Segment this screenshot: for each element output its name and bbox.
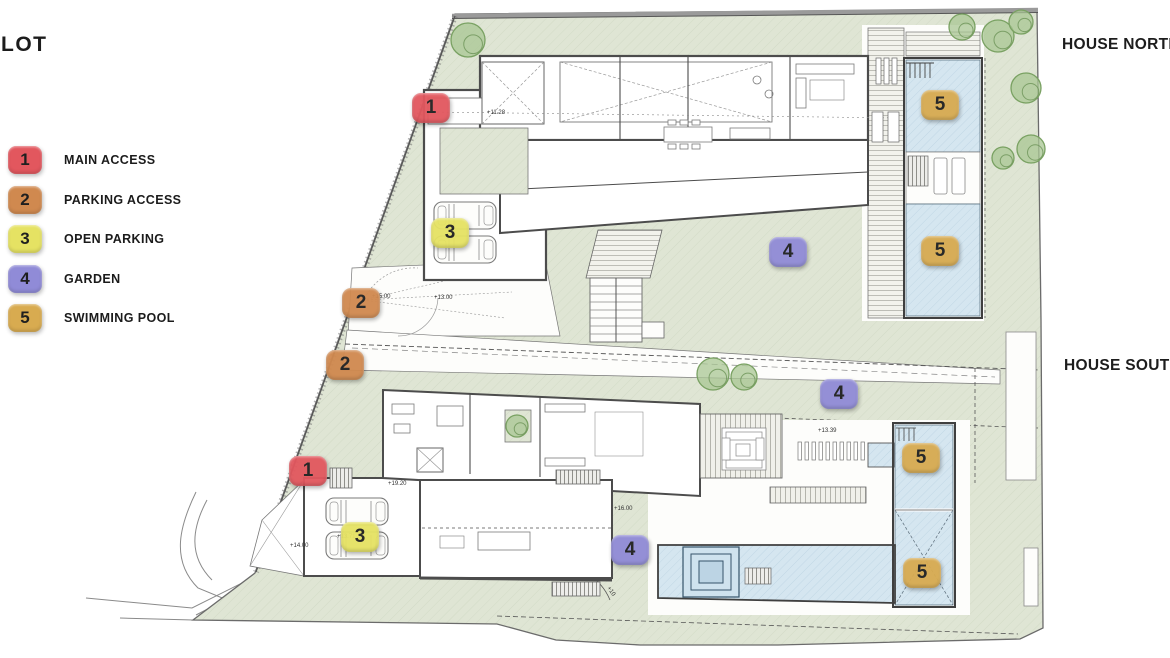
elevation-label: +13.39 (818, 428, 837, 434)
pool-ladder-icon (906, 63, 934, 78)
plan-marker-swimming-pool: 5 (902, 443, 940, 473)
north-court (440, 128, 528, 194)
boardwalk (770, 487, 866, 503)
plan-marker-garden: 4 (769, 237, 807, 267)
plan-marker-garden: 4 (611, 535, 649, 565)
plan-marker-swimming-pool: 5 (903, 558, 941, 588)
plan-marker-main-access: 1 (412, 93, 450, 123)
pool-lounger (934, 158, 947, 194)
plan-marker-swimming-pool: 5 (921, 90, 959, 120)
elevation-label: +16.00 (614, 506, 633, 512)
plan-marker-open-parking: 3 (341, 522, 379, 552)
pool-lounger (952, 158, 965, 194)
plan-marker-main-access: 1 (289, 456, 327, 486)
plan-marker-open-parking: 3 (431, 218, 469, 248)
elevation-label: +19.20 (388, 481, 407, 487)
site-plan-page: LOT 1MAIN ACCESS2PARKING ACCESS3OPEN PAR… (0, 0, 1170, 658)
plan-marker-parking-access: 2 (326, 350, 364, 380)
plan-marker-garden: 4 (820, 379, 858, 409)
elevation-label: +13.00 (434, 295, 453, 301)
jacuzzi (683, 547, 739, 597)
garden-stairs-wide (586, 230, 662, 278)
south-pergola (700, 414, 782, 478)
site-plan-drawing: +11.28+15.00+13.00+19.20+16.00+13.39+13.… (0, 0, 1170, 658)
south-entry-steps (330, 468, 352, 488)
pool-bridge (868, 443, 894, 467)
plan-marker-swimming-pool: 5 (921, 236, 959, 266)
elevation-label: +14.00 (290, 543, 309, 549)
plan-marker-parking-access: 2 (342, 288, 380, 318)
elevation-label: +11.28 (487, 110, 506, 116)
